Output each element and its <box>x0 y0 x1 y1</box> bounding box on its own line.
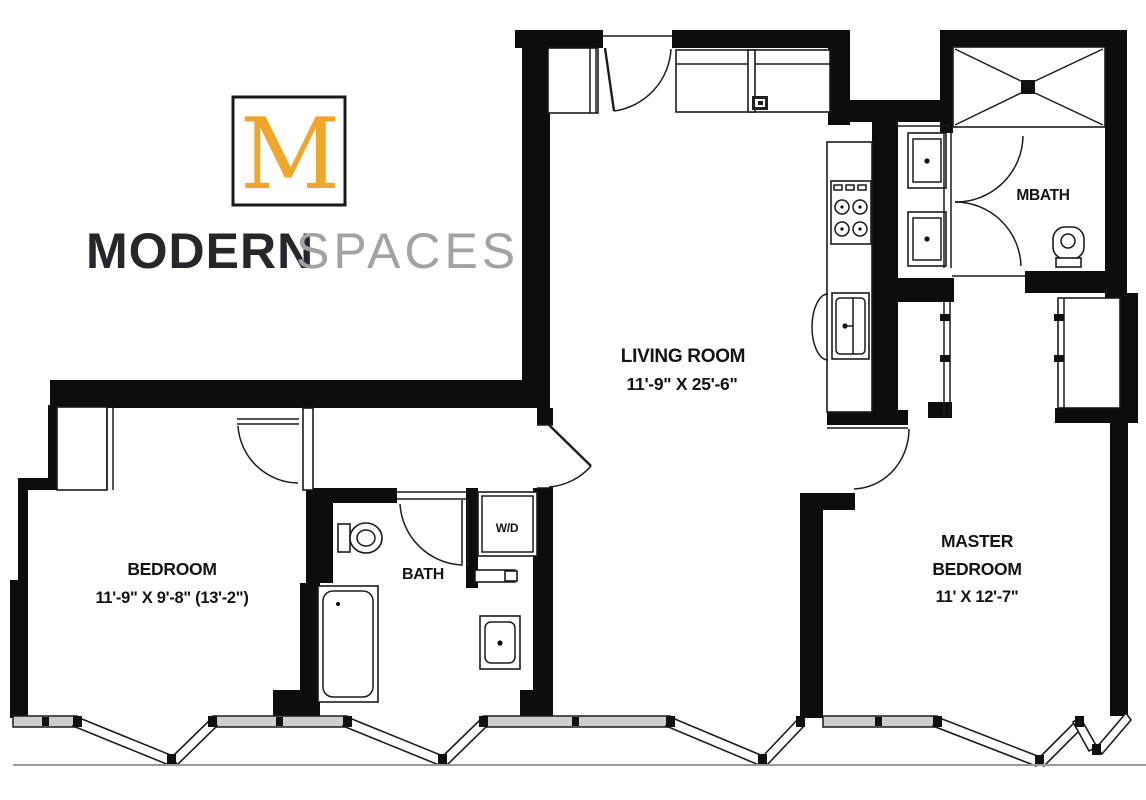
brand-name-bold: MODERN <box>86 223 314 279</box>
master-closet <box>1058 298 1120 408</box>
master-bedroom-label-line1: MASTER <box>941 531 1014 551</box>
walls <box>10 30 1138 718</box>
bedroom-label: BEDROOM <box>127 559 216 579</box>
mbath-door-swing-arc-lower <box>955 202 1021 266</box>
master-bath-label: MBATH <box>1016 187 1069 204</box>
brand-name-light: SPACES <box>296 223 519 279</box>
vanity-sink-2-icon <box>908 212 946 266</box>
bedroom <box>57 407 113 490</box>
bay-windows <box>13 713 1146 766</box>
logo-monogram-icon: M <box>240 98 340 212</box>
floor-plan-drawing: M MODERN SPACES <box>0 0 1146 800</box>
master-closets <box>940 298 1120 418</box>
mbath-doors <box>944 133 1023 268</box>
bedroom-dims: 11'-9" X 9'-8" (13'-2") <box>95 589 248 607</box>
entry-door-leaf <box>605 48 614 111</box>
master-bath <box>944 47 1105 276</box>
laundry-label: W/D <box>496 521 519 535</box>
master-suite-door-swing-arc <box>854 429 909 489</box>
bath-shelf <box>475 570 517 582</box>
bathtub-icon <box>318 586 378 702</box>
mbath-door-swing-arc-upper <box>955 136 1023 202</box>
hall-door-leaf <box>548 424 591 466</box>
stove-icon <box>831 181 871 244</box>
vanity-corridor <box>898 126 950 266</box>
entry-closets-right <box>676 50 830 112</box>
entry-closet-left <box>548 48 598 113</box>
bedroom-door-swing-arc <box>238 426 298 483</box>
mbath-toilet-icon <box>1053 227 1084 267</box>
living-room-dims: 11'-9" X 25'-6" <box>627 374 738 394</box>
bath-sink-icon <box>480 616 520 669</box>
bedroom-closet <box>57 407 113 490</box>
master-bedroom-dims: 11' X 12'-7" <box>936 588 1019 606</box>
bedroom-door-jamb <box>303 408 313 490</box>
brand-logo: M MODERN SPACES <box>86 97 519 279</box>
hall-door-swing-arc <box>549 466 591 487</box>
kitchen-sink-icon <box>812 293 869 360</box>
living-room-label: LIVING ROOM <box>621 346 745 367</box>
shower-icon <box>953 47 1105 127</box>
master-bedroom-label-line2: BEDROOM <box>932 559 1021 579</box>
floor-plan-page: M MODERN SPACES <box>0 0 1146 800</box>
bath-toilet-icon <box>338 523 382 553</box>
entry-door-swing-arc <box>614 49 671 111</box>
vanity-sink-1-icon <box>908 133 946 188</box>
bath-label: BATH <box>402 566 444 583</box>
bath-door-swing-arc <box>400 504 461 565</box>
